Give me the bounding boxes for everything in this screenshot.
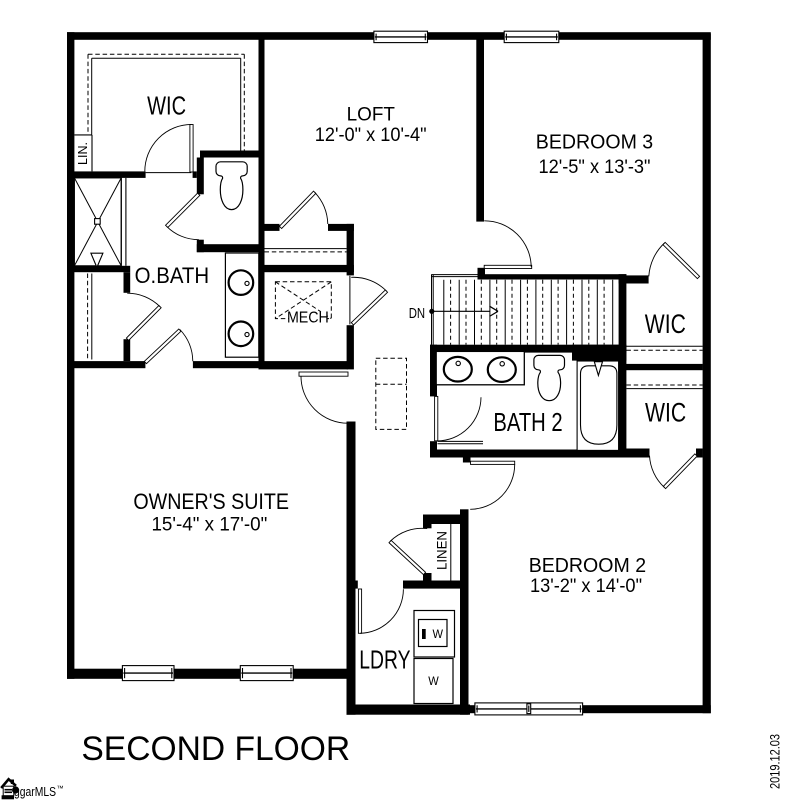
svg-text:SECOND FLOOR: SECOND FLOOR bbox=[81, 730, 350, 768]
svg-text:ggarMLS: ggarMLS bbox=[14, 785, 56, 799]
svg-text:15'-4" x 17'-0": 15'-4" x 17'-0" bbox=[151, 514, 267, 536]
svg-text:OWNER'S SUITE: OWNER'S SUITE bbox=[133, 489, 289, 514]
svg-text:O.BATH: O.BATH bbox=[135, 263, 210, 288]
svg-text:12'-0" x 10'-4": 12'-0" x 10'-4" bbox=[315, 125, 427, 146]
svg-text:WIC: WIC bbox=[645, 309, 686, 339]
svg-text:LOFT: LOFT bbox=[347, 104, 395, 126]
svg-text:BATH 2: BATH 2 bbox=[493, 409, 562, 437]
svg-text:BEDROOM 2: BEDROOM 2 bbox=[529, 554, 646, 577]
svg-text:WIC: WIC bbox=[147, 91, 186, 121]
svg-text:LIN.: LIN. bbox=[75, 142, 90, 165]
svg-text:LINEN: LINEN bbox=[434, 531, 449, 570]
svg-text:MECH: MECH bbox=[287, 309, 329, 326]
svg-text:LDRY: LDRY bbox=[359, 646, 410, 674]
svg-text:™: ™ bbox=[57, 785, 64, 792]
svg-text:DN: DN bbox=[409, 306, 425, 322]
svg-text:12'-5" x 13'-3": 12'-5" x 13'-3" bbox=[539, 157, 651, 178]
svg-text:2019.12.03: 2019.12.03 bbox=[767, 734, 783, 789]
svg-text:W: W bbox=[432, 629, 443, 641]
svg-text:13'-2" x 14'-0": 13'-2" x 14'-0" bbox=[530, 575, 642, 597]
svg-text:W: W bbox=[428, 676, 439, 688]
svg-text:WIC: WIC bbox=[645, 397, 686, 427]
svg-text:BEDROOM 3: BEDROOM 3 bbox=[536, 131, 653, 154]
